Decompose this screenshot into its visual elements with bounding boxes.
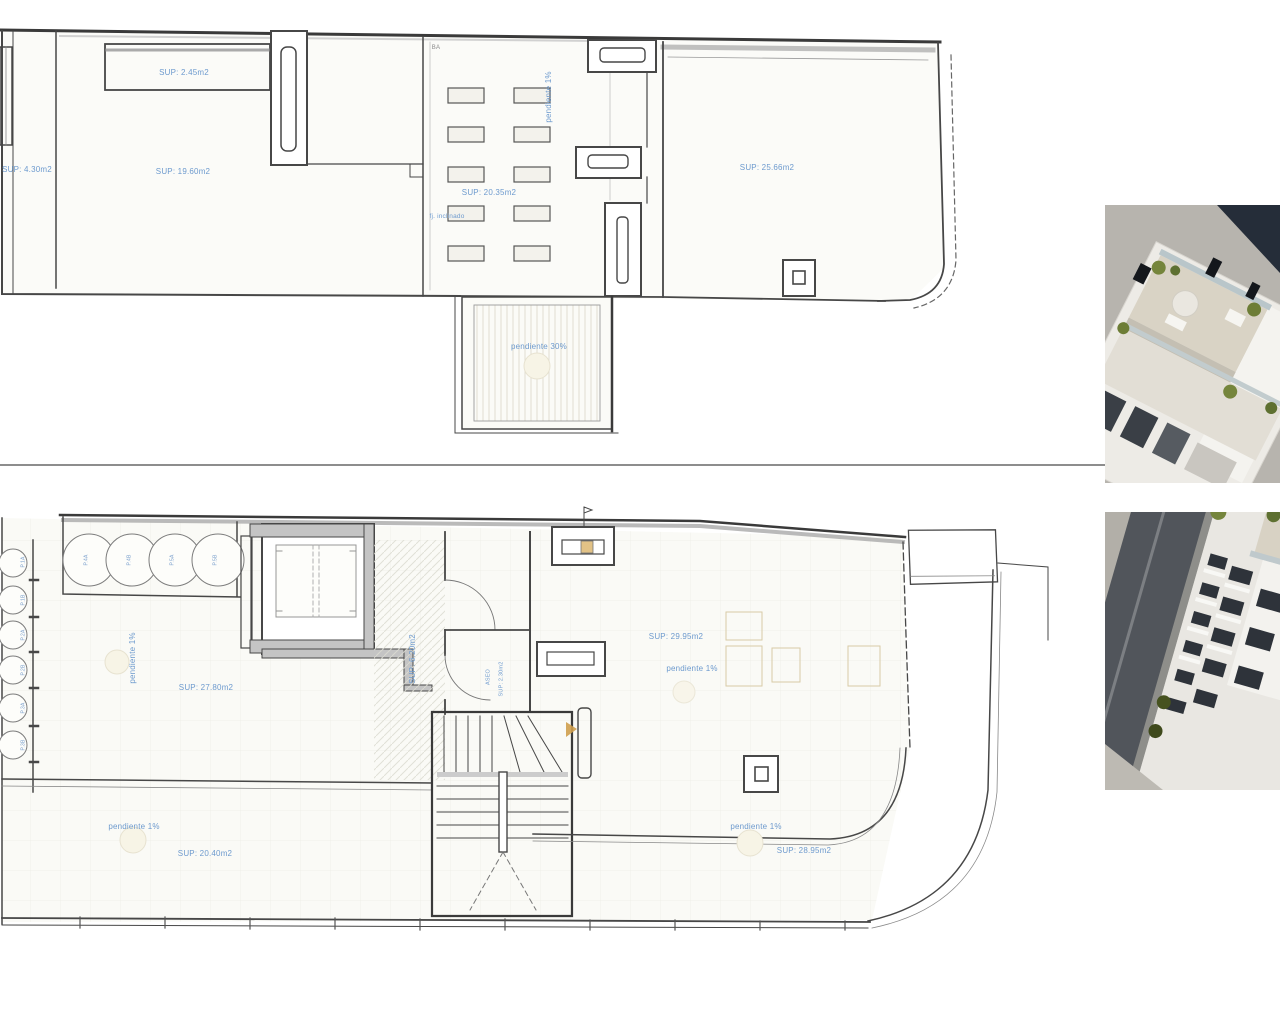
building-render-bottom-image [1105, 512, 1280, 790]
label-ac-left-5: P.3A [22, 703, 27, 714]
building-render-top [1105, 205, 1280, 483]
label-pendiente-right: pendiente 1% [666, 665, 717, 673]
label-sup-main-room: SUP: 19.60m2 [156, 168, 210, 176]
label-pendiente-bottom-left: pendiente 1% [108, 823, 159, 831]
label-ac-left-1: P.1A [22, 557, 27, 568]
label-ac-left-6: P.3B [22, 740, 27, 751]
penthouse-floor-plan [0, 507, 1048, 930]
label-pendiente-left: pendiente 1% [129, 632, 137, 683]
label-ac-left-2: P.1B [22, 595, 27, 606]
floor-plans-drawing [0, 0, 1280, 1024]
building-render-top-image [1105, 205, 1280, 483]
label-ac-top-2: P.4B [128, 555, 133, 566]
label-sup-center-terrace: SUP: 20.35m2 [462, 189, 516, 197]
label-pendiente-center: pendiente 1% [545, 71, 553, 122]
label-ac-left-3: P.2A [22, 630, 27, 641]
label-ac-top-4: P.5B [214, 555, 219, 566]
label-ac-top-3: P.5A [171, 555, 176, 566]
label-ac-left-4: P.2B [22, 665, 27, 676]
label-sup-left-strip: SUP: 4.30m2 [2, 166, 52, 174]
label-pendiente-bottom-right: pendiente 1% [730, 823, 781, 831]
label-ac-top-1: P.4A [85, 555, 90, 566]
label-sup-bottom-left: SUP: 20.40m2 [178, 850, 232, 858]
building-render-bottom [1105, 512, 1280, 790]
label-aseo: ASEO [486, 669, 492, 685]
roof-plan [0, 30, 956, 433]
label-sup-left-terrace: SUP: 27.80m2 [179, 684, 233, 692]
label-sup-right-terrace: SUP: 25.66m2 [740, 164, 794, 172]
label-sup-top-room: SUP: 2.45m2 [159, 69, 209, 77]
label-sup-aseo: SUP: 2.30m2 [499, 662, 505, 697]
label-fj-inclinado: fj. inclinado [429, 214, 464, 221]
label-pendiente-roof: pendiente 30% [511, 343, 567, 351]
label-sup-bottom-right: SUP: 28.95m2 [777, 847, 831, 855]
label-sup-right-terrace-floor: SUP: 29.95m2 [649, 633, 703, 641]
label-ref-mark: BA [432, 45, 440, 51]
label-sup-hall: SUP: 6.20m2 [409, 634, 417, 684]
